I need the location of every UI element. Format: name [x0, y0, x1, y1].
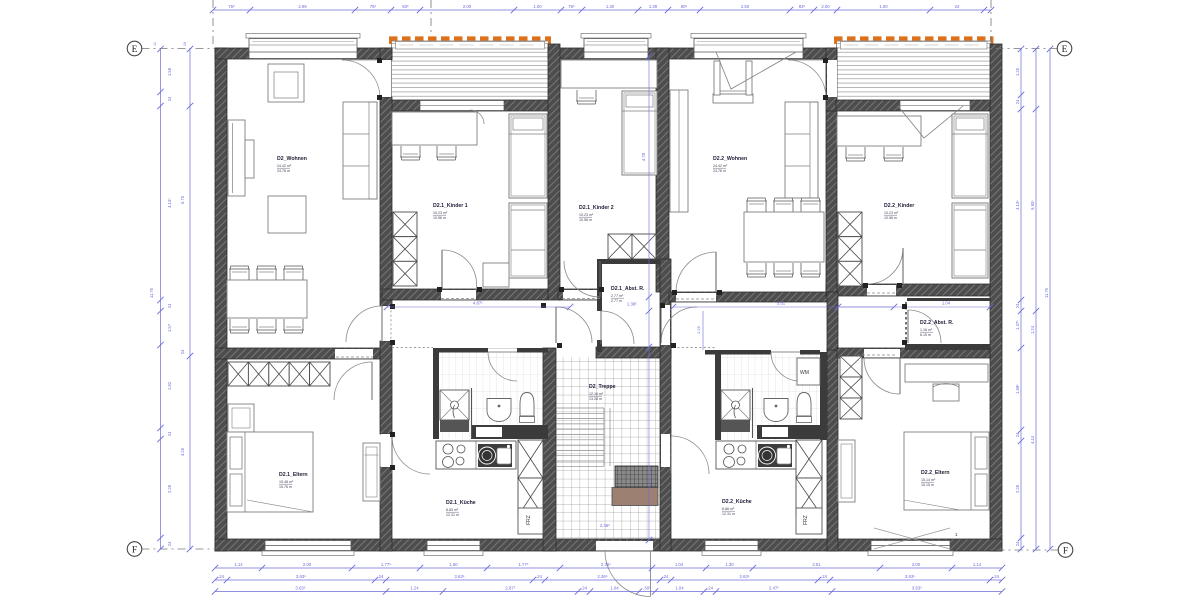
svg-text:76⁵: 76⁵ — [568, 4, 575, 9]
svg-text:2.00: 2.00 — [821, 4, 830, 9]
svg-text:F: F — [132, 545, 137, 555]
svg-text:.24: .24 — [218, 574, 225, 579]
svg-text:15.14 m²: 15.14 m² — [921, 478, 936, 482]
svg-text:5.93⁵: 5.93⁵ — [1030, 200, 1035, 210]
svg-text:.24: .24 — [581, 586, 588, 591]
svg-text:1.26: 1.26 — [696, 325, 701, 334]
svg-text:FRZ: FRZ — [526, 515, 532, 525]
svg-text:12.31 m: 12.31 m — [446, 513, 459, 517]
svg-text:24.42 m²: 24.42 m² — [713, 164, 728, 168]
svg-text:15.76 m: 15.76 m — [279, 485, 292, 489]
svg-text:1.39: 1.39 — [649, 4, 658, 9]
svg-text:1.37⁵: 1.37⁵ — [1015, 320, 1020, 330]
svg-text:2.36⁵: 2.36⁵ — [597, 574, 607, 579]
svg-text:.24: .24 — [378, 574, 385, 579]
svg-text:2.50: 2.50 — [741, 4, 750, 9]
svg-text:1.92: 1.92 — [167, 381, 172, 390]
svg-text:24: 24 — [1015, 303, 1020, 308]
svg-text:3.63⁵: 3.63⁵ — [739, 574, 749, 579]
svg-text:3.63⁵: 3.63⁵ — [905, 574, 915, 579]
svg-text:10.56 m: 10.56 m — [579, 218, 592, 222]
svg-text:.24: .24 — [707, 586, 714, 591]
svg-text:24.42 m²: 24.42 m² — [277, 164, 292, 168]
svg-text:2.28: 2.28 — [1015, 484, 1020, 493]
svg-text:10.23 m²: 10.23 m² — [884, 211, 899, 215]
svg-text:D2.2_Abst. R.: D2.2_Abst. R. — [920, 320, 954, 326]
svg-text:5.51: 5.51 — [777, 301, 786, 306]
svg-text:2.87⁵: 2.87⁵ — [505, 586, 515, 591]
svg-text:D2_Wohnen: D2_Wohnen — [277, 156, 307, 162]
svg-text:4.87⁵: 4.87⁵ — [473, 301, 483, 306]
svg-text:F: F — [1063, 546, 1068, 556]
svg-text:80⁵: 80⁵ — [681, 4, 688, 9]
svg-text:3.63⁵: 3.63⁵ — [296, 574, 306, 579]
svg-text:D2.1_Kinder 1: D2.1_Kinder 1 — [433, 203, 468, 209]
svg-text:1.00: 1.00 — [533, 4, 542, 9]
svg-text:1.24: 1.24 — [410, 586, 419, 591]
svg-text:13.28 m: 13.28 m — [589, 397, 602, 401]
svg-text:76⁵: 76⁵ — [370, 4, 377, 9]
svg-text:1.14: 1.14 — [234, 562, 243, 567]
svg-text:15.48 m²: 15.48 m² — [279, 480, 294, 484]
svg-text:2.00: 2.00 — [912, 562, 921, 567]
svg-text:4.70: 4.70 — [641, 152, 646, 161]
svg-text:10.56 m: 10.56 m — [433, 216, 446, 220]
svg-text:24: 24 — [167, 96, 172, 101]
svg-text:8.88 m²: 8.88 m² — [722, 507, 735, 511]
svg-text:2.47⁵: 2.47⁵ — [769, 586, 779, 591]
svg-text:1.14: 1.14 — [973, 562, 982, 567]
svg-text:2.00: 2.00 — [463, 4, 472, 9]
svg-text:24: 24 — [183, 42, 187, 46]
svg-text:D2.1_Eltern: D2.1_Eltern — [279, 472, 308, 478]
svg-text:D2.1_Küche: D2.1_Küche — [446, 500, 476, 506]
svg-text:24: 24 — [167, 303, 172, 308]
svg-text:1.30: 1.30 — [606, 4, 615, 9]
svg-text:1.04: 1.04 — [610, 586, 619, 591]
svg-text:3.63⁵: 3.63⁵ — [295, 586, 305, 591]
svg-text:1.69⁵: 1.69⁵ — [1015, 384, 1020, 394]
svg-text:1.04: 1.04 — [675, 586, 684, 591]
svg-text:.24: .24 — [536, 574, 543, 579]
svg-text:1.04: 1.04 — [675, 562, 684, 567]
svg-text:24: 24 — [167, 541, 172, 546]
svg-text:24.76 m: 24.76 m — [277, 169, 290, 173]
svg-text:1.00: 1.00 — [879, 4, 888, 9]
svg-text:8.83 m²: 8.83 m² — [446, 508, 459, 512]
svg-text:D2.2_Küche: D2.2_Küche — [722, 499, 752, 505]
svg-text:.24: .24 — [993, 574, 1000, 579]
svg-text:10.56 m: 10.56 m — [884, 216, 897, 220]
svg-text:24: 24 — [1015, 541, 1020, 546]
svg-text:1.77⁵: 1.77⁵ — [518, 562, 528, 567]
svg-text:E: E — [1062, 45, 1068, 55]
svg-text:76⁵: 76⁵ — [228, 4, 235, 9]
svg-text:10.23 m²: 10.23 m² — [433, 211, 448, 215]
svg-text:4.26: 4.26 — [180, 447, 185, 456]
svg-text:.30⁵: .30⁵ — [643, 586, 651, 591]
svg-text:6.76: 6.76 — [180, 195, 185, 204]
svg-text:24: 24 — [955, 4, 960, 9]
svg-text:2.36⁵: 2.36⁵ — [600, 523, 610, 528]
svg-text:1.25: 1.25 — [1015, 67, 1020, 76]
svg-text:24: 24 — [1015, 432, 1020, 437]
svg-text:.24: .24 — [821, 574, 828, 579]
svg-text:1.58: 1.58 — [167, 67, 172, 76]
svg-text:D2_Treppe: D2_Treppe — [589, 384, 616, 390]
svg-text:24: 24 — [1015, 99, 1020, 104]
svg-text:11.76: 11.76 — [1044, 287, 1049, 298]
svg-text:12.16 m²: 12.16 m² — [589, 392, 604, 396]
svg-text:D2.2_Eltern: D2.2_Eltern — [921, 470, 950, 476]
svg-text:D2.1_Abst. R.: D2.1_Abst. R. — [611, 286, 645, 292]
svg-text:2.00: 2.00 — [303, 562, 312, 567]
svg-text:6.15 m: 6.15 m — [920, 333, 931, 337]
svg-text:1.30: 1.30 — [725, 562, 734, 567]
svg-text:1.24: 1.24 — [1030, 325, 1035, 334]
svg-text:D2.2_Kinder: D2.2_Kinder — [884, 203, 914, 209]
svg-text:3.63⁵: 3.63⁵ — [454, 574, 464, 579]
svg-text:D2.1_Kinder 2: D2.1_Kinder 2 — [579, 205, 614, 211]
svg-text:FRZ: FRZ — [803, 515, 809, 525]
svg-text:4.13⁵: 4.13⁵ — [1015, 200, 1020, 210]
svg-text:83⁵: 83⁵ — [402, 4, 409, 9]
svg-text:1.16 m²: 1.16 m² — [920, 328, 933, 332]
svg-text:2.28: 2.28 — [167, 484, 172, 493]
svg-text:1.57: 1.57 — [167, 323, 172, 332]
svg-text:WM: WM — [800, 370, 809, 376]
svg-text:12.31 m: 12.31 m — [722, 512, 735, 516]
svg-text:24.76 m: 24.76 m — [713, 169, 726, 173]
svg-text:4.13⁵: 4.13⁵ — [167, 198, 172, 208]
svg-text:D2.2_Wohnen: D2.2_Wohnen — [713, 156, 747, 162]
svg-text:1.50: 1.50 — [449, 562, 458, 567]
svg-text:11.76: 11.76 — [149, 287, 154, 298]
svg-text:2.77 m: 2.77 m — [611, 299, 622, 303]
svg-text:.24: .24 — [663, 574, 670, 579]
svg-text:10.23 m²: 10.23 m² — [579, 213, 594, 217]
svg-text:2.77 m²: 2.77 m² — [611, 294, 624, 298]
svg-text:1.04: 1.04 — [942, 301, 951, 306]
svg-text:1.77⁵: 1.77⁵ — [381, 562, 391, 567]
svg-text:2.51: 2.51 — [812, 562, 821, 567]
svg-text:15.15 m: 15.15 m — [921, 483, 934, 487]
svg-text:24: 24 — [167, 431, 172, 436]
svg-text:2.36⁵: 2.36⁵ — [601, 562, 611, 567]
svg-text:10: 10 — [153, 42, 157, 46]
svg-text:83⁵: 83⁵ — [799, 4, 806, 9]
svg-text:24: 24 — [180, 349, 185, 354]
svg-text:4.44: 4.44 — [1030, 435, 1035, 444]
svg-text:3.63⁵: 3.63⁵ — [912, 586, 922, 591]
svg-text:2.99: 2.99 — [298, 4, 307, 9]
svg-text:1.38⁵: 1.38⁵ — [627, 302, 637, 307]
svg-text:E: E — [132, 45, 138, 55]
